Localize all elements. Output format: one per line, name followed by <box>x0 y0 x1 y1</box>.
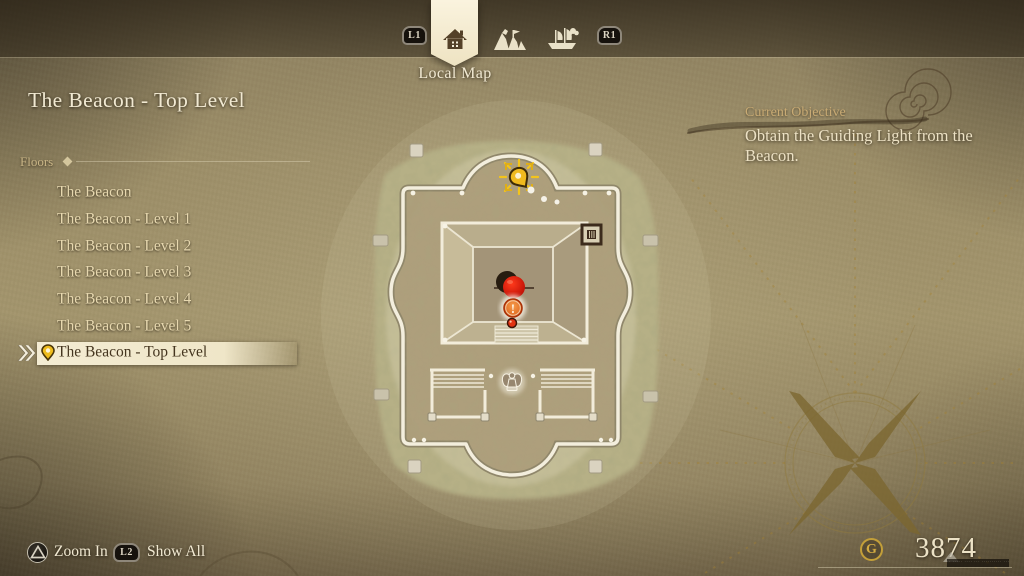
floor-item-level-3[interactable]: The Beacon - Level 3 <box>0 260 310 287</box>
zoom-in-label: Zoom In <box>54 543 108 561</box>
objective-heading: Current Objective <box>745 105 846 121</box>
footer-rule <box>818 567 1012 568</box>
diamond-ornament-icon <box>63 157 73 167</box>
player-position-dot <box>508 319 517 328</box>
ship-icon[interactable] <box>545 25 581 53</box>
floors-heading-label: Floors <box>20 154 53 169</box>
svg-text:!: ! <box>511 302 515 316</box>
door-icon <box>582 225 601 244</box>
floor-item-top-level[interactable]: The Beacon - Top Level <box>0 340 310 367</box>
tab-label: Local Map <box>391 65 519 83</box>
house-icon <box>442 26 468 52</box>
triangle-glyph-icon <box>29 543 47 561</box>
local-map-canvas: ! <box>367 133 667 503</box>
show-all-label: Show All <box>147 543 205 561</box>
floor-list: The Beacon The Beacon - Level 1 The Beac… <box>0 180 310 367</box>
l1-bumper-button[interactable]: L1 <box>402 26 427 45</box>
floor-item-level-4[interactable]: The Beacon - Level 4 <box>0 287 310 314</box>
floor-item-level-5[interactable]: The Beacon - Level 5 <box>0 313 310 340</box>
selection-chevron-icon <box>17 345 35 361</box>
chamber-stairs <box>495 326 538 343</box>
floors-rule <box>76 161 310 162</box>
mountain-icon[interactable] <box>492 26 528 54</box>
selected-tab-banner[interactable] <box>431 0 478 66</box>
l2-button[interactable]: L2 <box>113 543 140 562</box>
local-map-screen: L1 <box>0 0 1024 576</box>
page-title: The Beacon - Top Level <box>28 88 245 113</box>
statue-icon <box>499 369 525 395</box>
triangle-button[interactable] <box>27 542 48 563</box>
objective-text: Obtain the Guiding Light from the Beacon… <box>745 126 977 165</box>
r1-bumper-button[interactable]: R1 <box>597 26 622 45</box>
floors-heading: Floors <box>20 154 300 170</box>
floor-pin-icon <box>41 344 55 361</box>
gil-coin-icon: G <box>860 538 883 561</box>
spiral-doodle <box>886 69 951 130</box>
floor-item-level-2[interactable]: The Beacon - Level 2 <box>0 233 310 260</box>
watermark-fine-print: ·· ····· ···· ··· ·········· ··· ···· <box>947 559 1009 567</box>
floor-item-level-1[interactable]: The Beacon - Level 1 <box>0 207 310 234</box>
top-bar-divider <box>0 57 1024 58</box>
floor-item-the-beacon[interactable]: The Beacon <box>0 180 310 207</box>
objective-exclamation-marker: ! <box>500 295 526 321</box>
